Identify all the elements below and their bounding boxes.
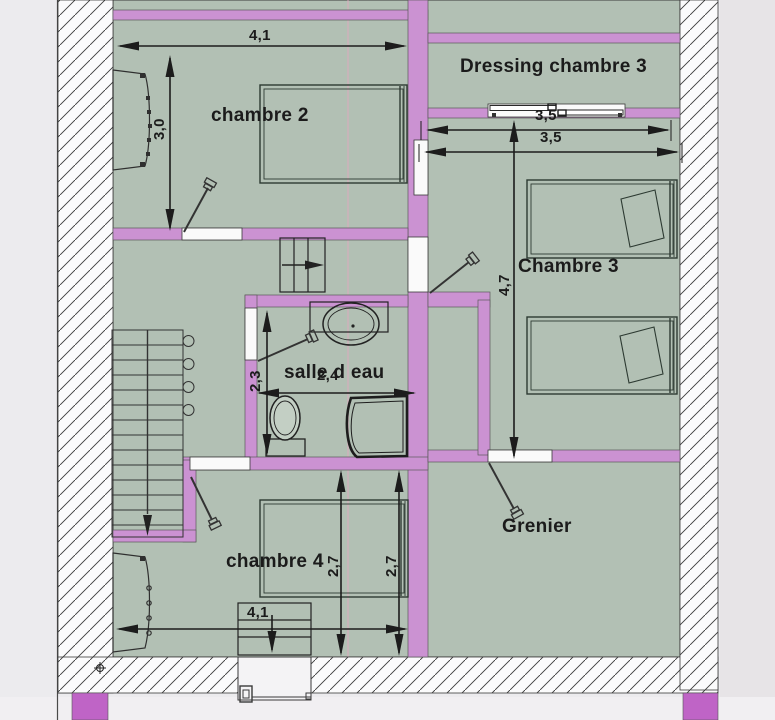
- wall: [428, 450, 680, 462]
- paper-bottom-margin: [0, 697, 775, 720]
- hatch-band-bottom: [58, 657, 718, 693]
- wall: [478, 300, 490, 455]
- room-label-grenier: Grenier: [502, 517, 572, 536]
- wardrobe-icon-chambre4: [113, 553, 151, 652]
- wall-niche: [414, 140, 428, 195]
- room-label-chambre-4: chambre 4: [226, 552, 324, 571]
- dim-label-chambre2-height: 3,0: [152, 118, 167, 140]
- hatch-band-left: [58, 0, 113, 693]
- room-label-chambre-3: Chambre 3: [518, 257, 619, 276]
- wall: [428, 33, 680, 43]
- room-label-dressing-chambre-3: Dressing chambre 3: [460, 57, 647, 76]
- wall: [113, 10, 428, 20]
- wall: [113, 228, 408, 240]
- wall: [245, 295, 408, 307]
- dim-label-chambre4-width: 4,1: [247, 605, 269, 620]
- wall: [113, 530, 196, 542]
- floor-plan-drawing: [0, 0, 775, 720]
- door-opening: [408, 237, 428, 292]
- wardrobe-icon-chambre2: [113, 70, 152, 170]
- floor-plan-page: chambre 2 Dressing chambre 3 Chambre 3 s…: [0, 0, 775, 720]
- dim-label-chambre3-height: 4,7: [497, 274, 512, 296]
- door-opening: [245, 308, 257, 360]
- dim-label-chambre4-height-outer: 2,7: [384, 555, 399, 577]
- door-opening: [182, 228, 242, 240]
- dim-label-salle-d-eau-height: 2,3: [248, 370, 263, 392]
- room-label-chambre-2: chambre 2: [211, 106, 309, 125]
- corner-block-bottom-right: [683, 693, 718, 720]
- scan-fold-line: [347, 0, 349, 657]
- dim-label-chambre3-width-lower: 3,5: [540, 130, 562, 145]
- dim-label-salle-d-eau-width: 2,4: [317, 368, 339, 383]
- hatch-band-right: [680, 0, 718, 690]
- dim-label-chambre2-width: 4,1: [249, 28, 271, 43]
- door-opening: [190, 457, 250, 470]
- wall: [408, 0, 428, 657]
- corner-block-bottom-left: [72, 693, 108, 720]
- dormer-window-icon: [238, 657, 311, 702]
- paper-right-margin: [720, 0, 775, 720]
- door-opening: [488, 450, 552, 462]
- dim-label-chambre3-width-upper: 3,5: [535, 108, 557, 123]
- dim-label-chambre4-height-inner: 2,7: [326, 555, 341, 577]
